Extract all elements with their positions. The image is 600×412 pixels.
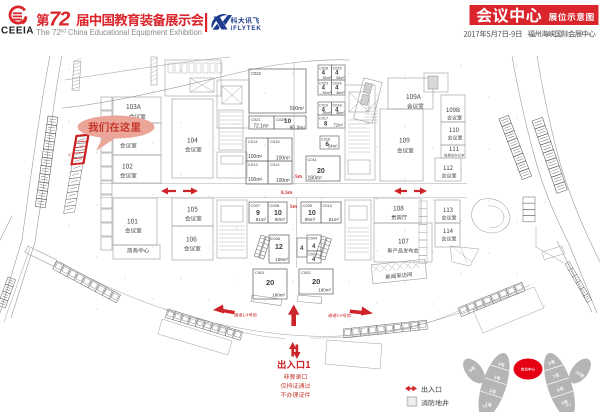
- svg-text:500m²: 500m²: [290, 106, 305, 112]
- svg-text:C021: C021: [251, 117, 261, 122]
- svg-text:108m²: 108m²: [275, 257, 288, 262]
- svg-text:90m²: 90m²: [275, 217, 286, 222]
- svg-text:36m²: 36m²: [322, 111, 331, 115]
- svg-text:36m²: 36m²: [322, 91, 331, 95]
- svg-text:The 72: The 72: [36, 28, 61, 37]
- svg-text:C001: C001: [255, 270, 265, 275]
- svg-text:81m²: 81m²: [329, 217, 340, 222]
- svg-text:C009: C009: [303, 203, 313, 208]
- svg-text:C006: C006: [271, 236, 281, 241]
- svg-text:C022: C022: [251, 71, 262, 76]
- svg-text:180m²: 180m²: [272, 293, 285, 298]
- svg-text:72.1m²: 72.1m²: [253, 124, 269, 130]
- svg-text:180m²: 180m²: [318, 288, 331, 293]
- svg-text:8: 8: [324, 122, 328, 128]
- svg-text:iFLYTEK: iFLYTEK: [231, 25, 262, 32]
- svg-text:China Educational Equipment Ex: China Educational Equipment Exhibition: [68, 28, 202, 37]
- svg-text:100m²: 100m²: [248, 177, 263, 183]
- svg-text:nd: nd: [61, 29, 67, 35]
- svg-text:20: 20: [312, 277, 320, 286]
- svg-text:90.3m²: 90.3m²: [289, 126, 305, 132]
- svg-text:C002: C002: [301, 270, 311, 275]
- svg-text:81m²: 81m²: [256, 217, 267, 222]
- svg-text:36m²: 36m²: [322, 76, 331, 80]
- svg-text:9: 9: [256, 210, 260, 217]
- svg-text:20: 20: [317, 168, 325, 175]
- svg-text:12: 12: [275, 244, 283, 251]
- svg-text:C012: C012: [270, 162, 280, 167]
- svg-text:10: 10: [284, 118, 292, 125]
- svg-text:CEEIA: CEEIA: [1, 25, 34, 37]
- svg-text:72m²: 72m²: [333, 123, 343, 128]
- svg-text:36m²: 36m²: [336, 91, 345, 95]
- svg-text:C004: C004: [308, 237, 317, 241]
- svg-text:10: 10: [274, 210, 282, 217]
- svg-text:20: 20: [266, 278, 274, 287]
- svg-text:10: 10: [308, 210, 316, 217]
- svg-text:C008: C008: [270, 203, 280, 208]
- svg-text:4: 4: [312, 244, 316, 250]
- svg-text:C017: C017: [319, 117, 328, 121]
- svg-text:4: 4: [300, 246, 304, 252]
- svg-text:100m²: 100m²: [276, 178, 291, 184]
- svg-text:C014: C014: [248, 139, 258, 144]
- svg-text:180m²: 180m²: [308, 176, 323, 182]
- svg-text:C007: C007: [251, 203, 261, 208]
- svg-text:36m²: 36m²: [336, 76, 345, 80]
- svg-text:C016: C016: [321, 138, 330, 142]
- svg-text:C013: C013: [248, 162, 258, 167]
- svg-text:C010: C010: [323, 203, 333, 208]
- svg-text:C015: C015: [270, 139, 280, 144]
- svg-text:54m²: 54m²: [328, 144, 338, 149]
- svg-text:36m²: 36m²: [336, 111, 345, 115]
- svg-text:90m²: 90m²: [305, 217, 316, 222]
- svg-text:4: 4: [312, 257, 316, 263]
- svg-text:100m²: 100m²: [248, 154, 263, 160]
- svg-text:C011: C011: [308, 157, 318, 162]
